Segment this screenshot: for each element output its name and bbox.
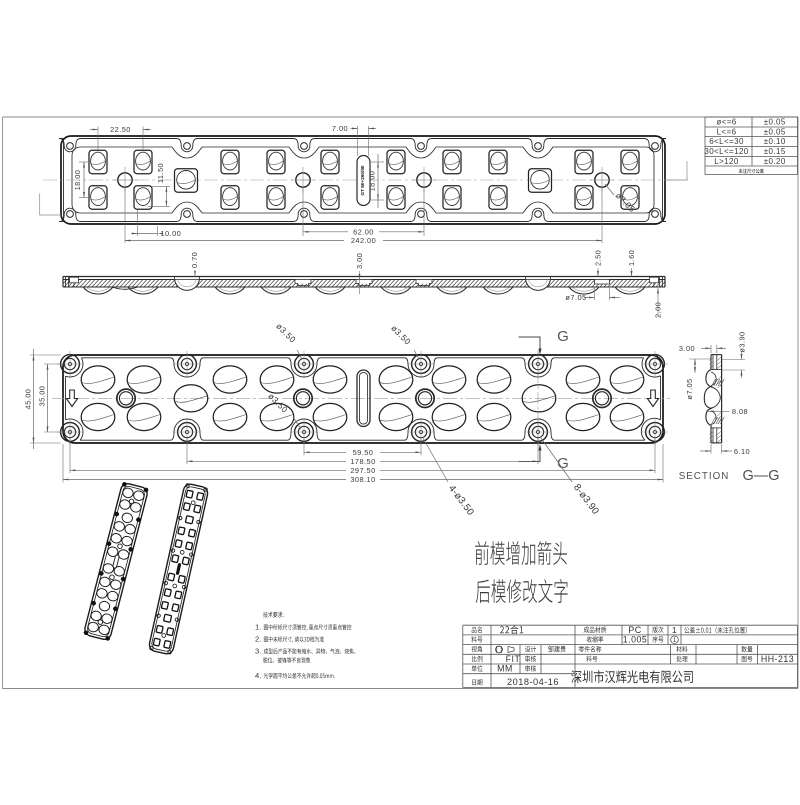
svg-text:4.: 4.	[255, 671, 261, 680]
svg-text:8.08: 8.08	[732, 407, 748, 416]
svg-text:±0.05: ±0.05	[764, 127, 786, 136]
svg-text:3.00: 3.00	[679, 344, 695, 353]
svg-text:308.10: 308.10	[350, 475, 375, 484]
svg-text:6.10: 6.10	[734, 447, 750, 456]
svg-text:PC: PC	[628, 625, 642, 635]
svg-text:ø3.90: ø3.90	[738, 331, 747, 352]
svg-text:2018-04-16: 2018-04-16	[507, 677, 559, 687]
svg-text:ø<=6: ø<=6	[716, 118, 736, 127]
svg-text:HH-213: HH-213	[761, 654, 794, 664]
svg-text:6<L<=30: 6<L<=30	[709, 137, 744, 146]
svg-text:L<=6: L<=6	[717, 127, 737, 136]
svg-text:297.50: 297.50	[350, 466, 375, 475]
svg-text:18.00: 18.00	[367, 171, 376, 192]
svg-text:G—G: G—G	[742, 468, 779, 484]
svg-text:45.00: 45.00	[24, 389, 33, 410]
svg-text:11.50: 11.50	[156, 163, 165, 183]
svg-text:±0.15: ±0.15	[764, 147, 786, 156]
svg-text:2.: 2.	[255, 635, 261, 644]
svg-text:10.00: 10.00	[161, 229, 182, 238]
svg-text:ø7.05: ø7.05	[565, 293, 586, 302]
svg-text:178.50: 178.50	[350, 457, 375, 466]
svg-text:3.: 3.	[255, 647, 261, 656]
svg-text:GT 80+260/80: GT 80+260/80	[360, 165, 365, 195]
svg-text:1.: 1.	[255, 623, 261, 632]
svg-text:3.00: 3.00	[355, 253, 364, 269]
svg-text:1: 1	[672, 625, 677, 635]
svg-text:30<L<=120: 30<L<=120	[704, 147, 748, 156]
svg-text:FIT: FIT	[506, 654, 521, 664]
svg-text:35.00: 35.00	[38, 386, 47, 407]
svg-text:62.00: 62.00	[353, 228, 374, 237]
svg-text:±0.05: ±0.05	[764, 118, 786, 127]
svg-text:1.005: 1.005	[623, 634, 648, 644]
svg-text:SECTION: SECTION	[679, 471, 730, 482]
svg-text:±0.10: ±0.10	[764, 137, 786, 146]
svg-text:ø7.05: ø7.05	[685, 378, 694, 399]
svg-text:1.60: 1.60	[627, 250, 636, 266]
svg-text:0.70: 0.70	[190, 252, 199, 268]
svg-text:MM: MM	[497, 664, 513, 674]
svg-text:18.00: 18.00	[73, 170, 82, 191]
svg-text:2.50: 2.50	[594, 250, 603, 266]
svg-text:7.00: 7.00	[332, 124, 348, 133]
svg-text:L>120: L>120	[714, 157, 739, 166]
svg-text:±0.20: ±0.20	[764, 157, 786, 166]
svg-text:242.00: 242.00	[351, 236, 376, 245]
svg-text:59.50: 59.50	[353, 448, 374, 457]
svg-text:G: G	[557, 328, 569, 345]
svg-text:22.50: 22.50	[110, 125, 131, 134]
